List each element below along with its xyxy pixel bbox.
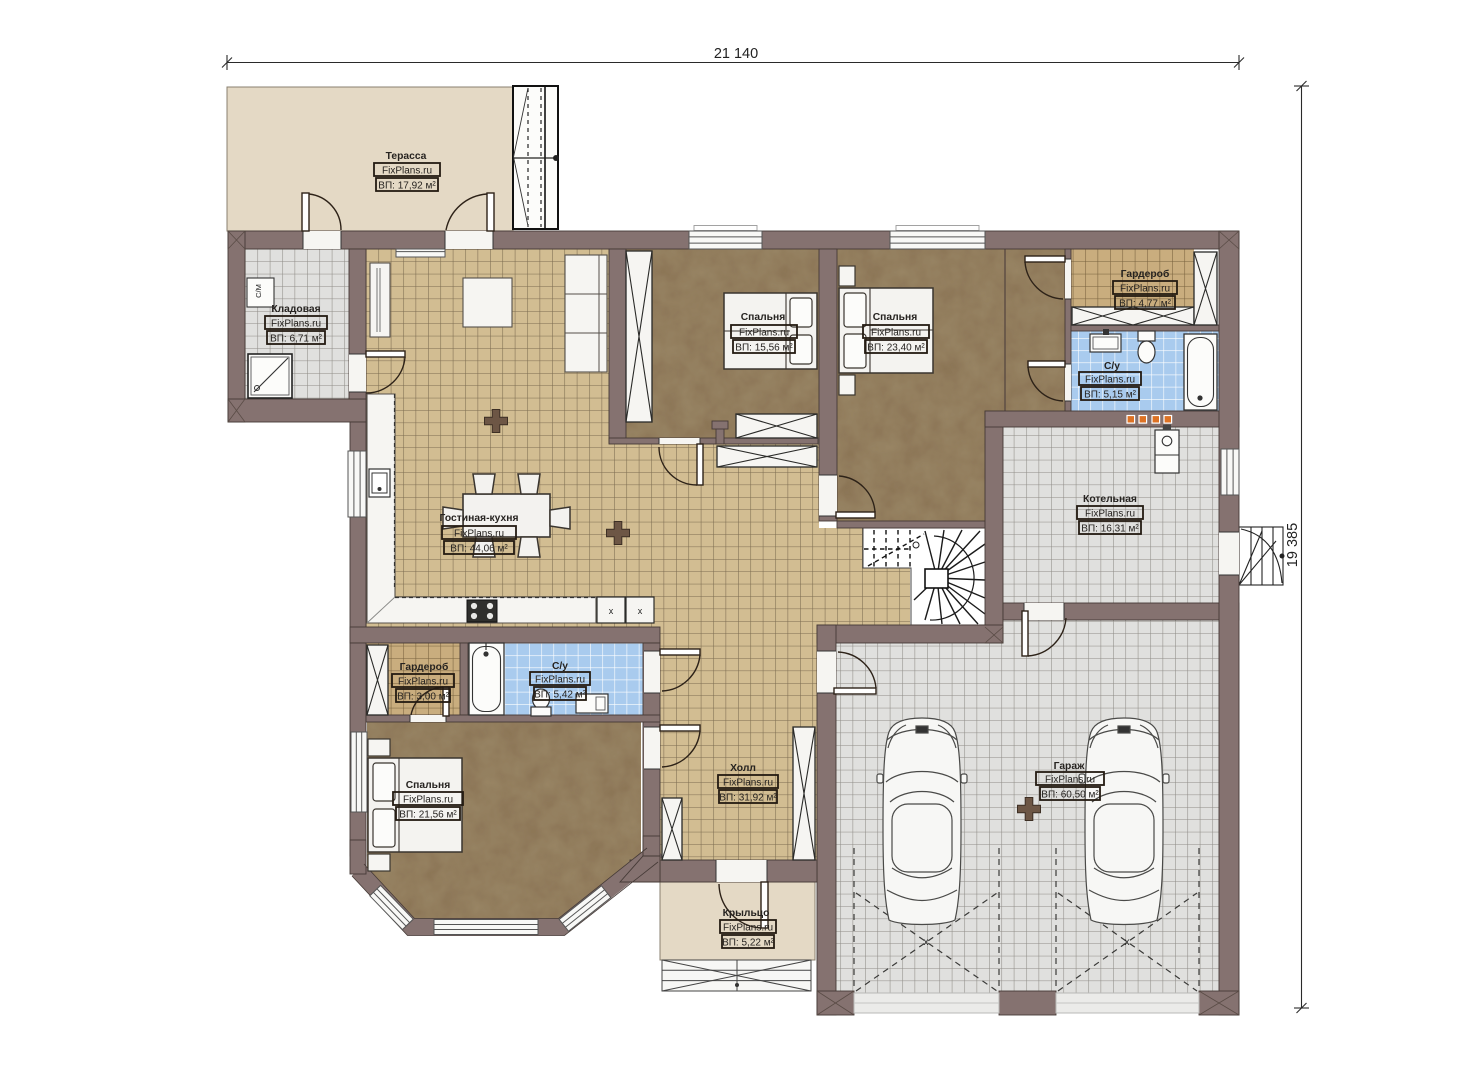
svg-text:Гараж: Гараж [1054, 761, 1085, 772]
svg-text:ВП: 16,31 м²: ВП: 16,31 м² [1081, 524, 1139, 535]
svg-text:ВП: 17,92 м²: ВП: 17,92 м² [378, 181, 436, 192]
svg-text:ВП: 3,00 м²: ВП: 3,00 м² [397, 692, 450, 703]
svg-text:ВП: 6,71 м²: ВП: 6,71 м² [270, 334, 323, 345]
svg-text:FixPlans.ru: FixPlans.ru [271, 319, 321, 330]
svg-text:ВП: 21,56 м²: ВП: 21,56 м² [399, 810, 457, 821]
svg-text:ВП: 5,15 м²: ВП: 5,15 м² [1084, 390, 1137, 401]
svg-text:Терасса: Терасса [386, 151, 427, 162]
svg-text:С/М: С/М [254, 284, 263, 298]
svg-text:21 140: 21 140 [714, 46, 758, 62]
svg-text:19 385: 19 385 [1285, 523, 1301, 567]
svg-text:x: x [1125, 937, 1130, 948]
svg-text:С/у: С/у [1104, 361, 1120, 372]
svg-text:ВП: 60,50 м²: ВП: 60,50 м² [1041, 790, 1099, 801]
svg-text:FixPlans.ru: FixPlans.ru [1120, 284, 1170, 295]
svg-text:FixPlans.ru: FixPlans.ru [739, 328, 789, 339]
svg-text:ВП: 31,92 м²: ВП: 31,92 м² [719, 793, 777, 804]
svg-text:Гостиная-кухня: Гостиная-кухня [440, 513, 519, 524]
svg-text:Гардероб: Гардероб [1121, 268, 1170, 280]
svg-text:ВП: 5,42 м²: ВП: 5,42 м² [534, 690, 587, 701]
svg-text:ВП: 23,40 м²: ВП: 23,40 м² [867, 343, 925, 354]
svg-text:FixPlans.ru: FixPlans.ru [535, 675, 585, 686]
svg-text:ВП: 4,77 м²: ВП: 4,77 м² [1119, 299, 1172, 310]
svg-text:FixPlans.ru: FixPlans.ru [454, 529, 504, 540]
svg-text:Холл: Холл [730, 763, 756, 774]
svg-text:Кладовая: Кладовая [271, 304, 320, 315]
svg-text:FixPlans.ru: FixPlans.ru [1085, 375, 1135, 386]
svg-text:Крыльцо: Крыльцо [723, 908, 770, 919]
svg-text:ВП: 5,22 м²: ВП: 5,22 м² [722, 938, 775, 949]
svg-text:FixPlans.ru: FixPlans.ru [403, 795, 453, 806]
svg-text:FixPlans.ru: FixPlans.ru [871, 328, 921, 339]
svg-text:ВП: 15,56 м²: ВП: 15,56 м² [735, 343, 793, 354]
svg-text:Котельная: Котельная [1083, 494, 1137, 505]
svg-text:FixPlans.ru: FixPlans.ru [382, 166, 432, 177]
svg-text:FixPlans.ru: FixPlans.ru [723, 923, 773, 934]
svg-text:FixPlans.ru: FixPlans.ru [398, 677, 448, 688]
svg-text:x: x [638, 606, 643, 616]
svg-text:FixPlans.ru: FixPlans.ru [723, 778, 773, 789]
svg-text:Спальня: Спальня [873, 312, 917, 323]
svg-text:Гардероб: Гардероб [400, 661, 449, 673]
svg-text:Спальня: Спальня [741, 312, 785, 323]
svg-text:ВП: 44,06 м²: ВП: 44,06 м² [450, 544, 508, 555]
svg-text:Спальня: Спальня [406, 780, 450, 791]
svg-text:x: x [609, 606, 614, 616]
svg-text:FixPlans.ru: FixPlans.ru [1085, 509, 1135, 520]
svg-text:С/у: С/у [552, 661, 568, 672]
svg-text:x: x [924, 937, 929, 948]
svg-text:FixPlans.ru: FixPlans.ru [1045, 775, 1095, 786]
